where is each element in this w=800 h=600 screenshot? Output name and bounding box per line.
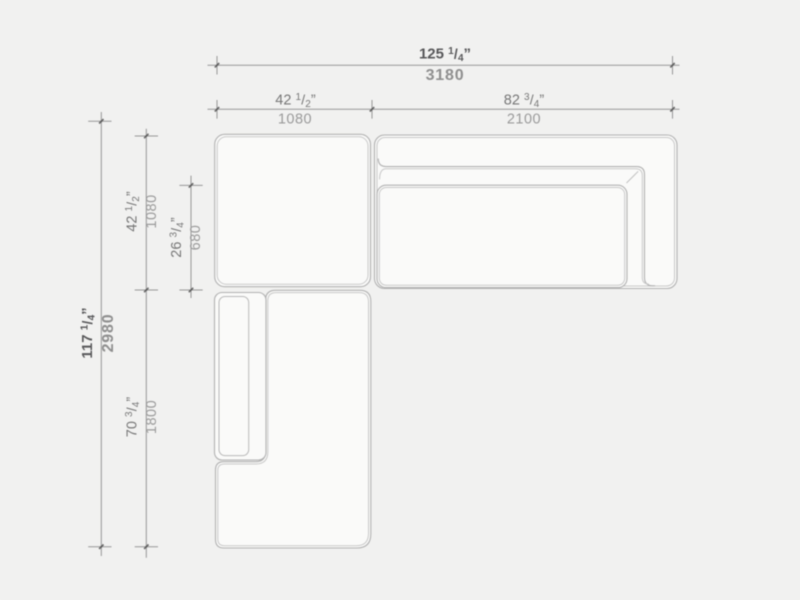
svg-text:2980: 2980 <box>100 314 117 353</box>
svg-text:680: 680 <box>188 225 204 251</box>
svg-text:1080: 1080 <box>278 111 312 127</box>
svg-text:2100: 2100 <box>507 111 541 127</box>
svg-text:1080: 1080 <box>144 194 160 228</box>
svg-text:1800: 1800 <box>144 400 160 434</box>
svg-text:125 1/4”: 125 1/4” <box>419 46 471 64</box>
svg-text:3180: 3180 <box>426 67 465 84</box>
svg-text:117 1/4”: 117 1/4” <box>79 307 98 358</box>
